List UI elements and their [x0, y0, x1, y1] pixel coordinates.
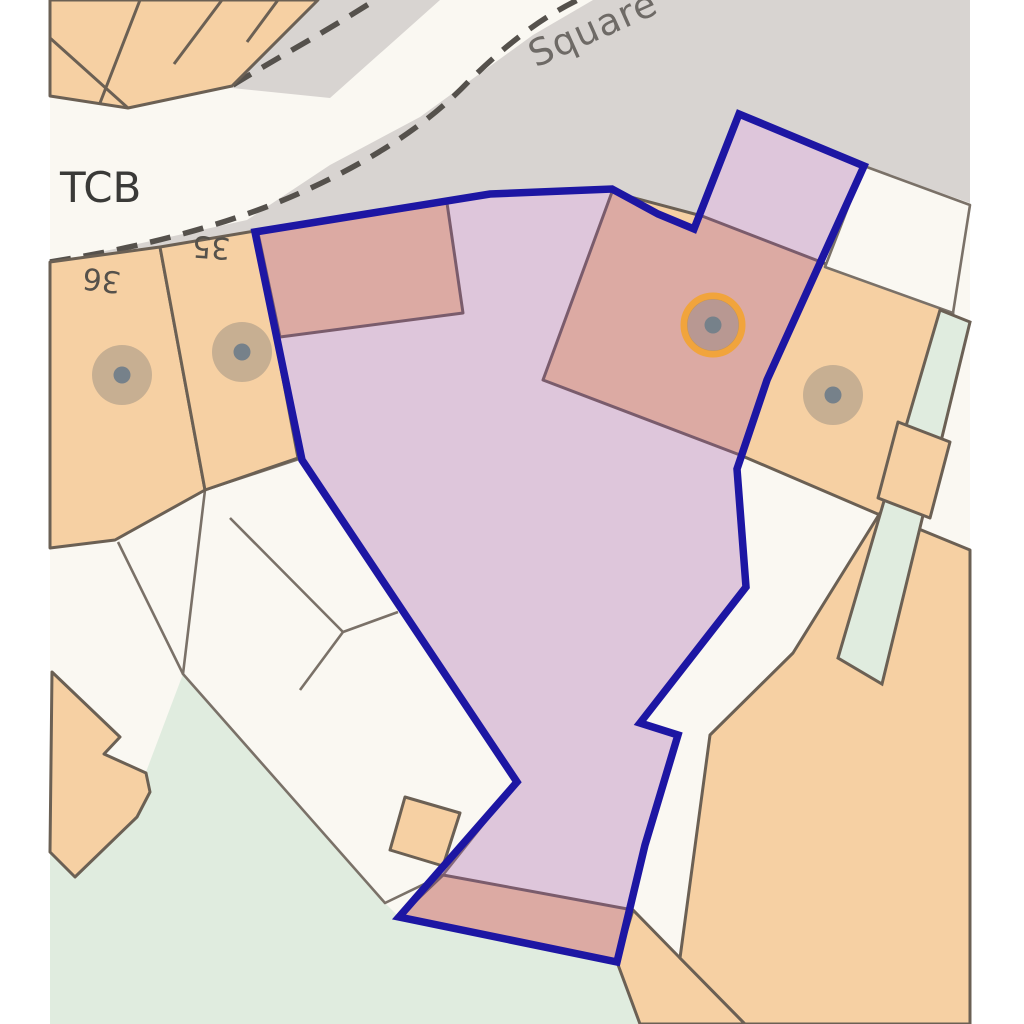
- map-svg: Square TCB 36 35: [0, 0, 1024, 1024]
- house-number-35: 35: [191, 228, 232, 266]
- marker-dot: [234, 344, 251, 361]
- marker-dot: [705, 317, 722, 334]
- map-canvas: Square TCB 36 35: [0, 0, 1024, 1024]
- house-number-36: 36: [81, 260, 123, 299]
- tcb-label: TCB: [59, 163, 141, 212]
- marker-dot: [825, 387, 842, 404]
- marker-dot: [114, 367, 131, 384]
